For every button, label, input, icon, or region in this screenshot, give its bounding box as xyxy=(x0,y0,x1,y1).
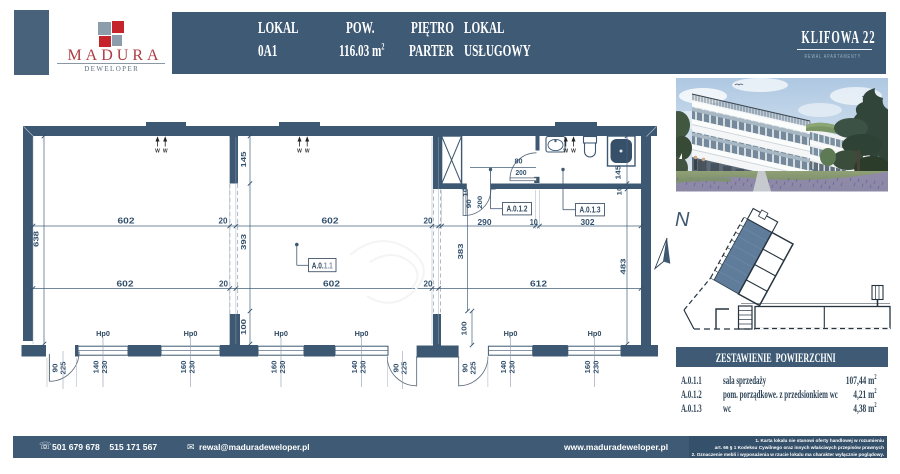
svg-text:W: W xyxy=(163,149,168,155)
svg-text:Hp0: Hp0 xyxy=(588,329,602,338)
svg-text:602: 602 xyxy=(117,279,134,289)
svg-text:90: 90 xyxy=(466,199,473,208)
svg-text:80: 80 xyxy=(515,159,523,166)
svg-text:100: 100 xyxy=(460,322,469,336)
svg-text:W: W xyxy=(571,149,576,155)
svg-text:160: 160 xyxy=(181,360,188,373)
svg-text:225: 225 xyxy=(471,361,478,374)
svg-text:140: 140 xyxy=(501,360,508,373)
svg-text:200: 200 xyxy=(516,170,527,177)
svg-text:230: 230 xyxy=(510,360,517,373)
svg-text:10: 10 xyxy=(463,187,470,196)
svg-text:90: 90 xyxy=(463,363,470,372)
svg-text:90: 90 xyxy=(394,363,401,372)
svg-text:10: 10 xyxy=(617,186,624,195)
svg-text:20: 20 xyxy=(219,216,228,226)
svg-text:302: 302 xyxy=(581,217,595,227)
svg-text:10: 10 xyxy=(530,217,538,227)
svg-text:160: 160 xyxy=(585,360,592,373)
svg-text:383: 383 xyxy=(456,244,465,260)
svg-text:A.0.1.3: A.0.1.3 xyxy=(580,204,601,214)
svg-text:602: 602 xyxy=(322,216,339,226)
svg-text:Hp0: Hp0 xyxy=(355,329,369,338)
svg-text:230: 230 xyxy=(280,360,287,373)
svg-text:602: 602 xyxy=(323,279,340,289)
svg-text:20: 20 xyxy=(424,279,433,289)
svg-text:W: W xyxy=(297,149,302,155)
svg-text:200: 200 xyxy=(477,195,484,208)
svg-text:290: 290 xyxy=(478,217,492,227)
svg-text:230: 230 xyxy=(361,360,368,373)
svg-text:W: W xyxy=(305,149,310,155)
svg-text:230: 230 xyxy=(594,360,601,373)
svg-text:483: 483 xyxy=(619,259,628,275)
svg-text:612: 612 xyxy=(530,279,547,289)
svg-text:230: 230 xyxy=(190,360,197,373)
svg-text:393: 393 xyxy=(239,234,248,250)
svg-text:90: 90 xyxy=(53,363,60,372)
svg-text:A.0.1.1: A.0.1.1 xyxy=(312,260,333,270)
svg-text:Hp0: Hp0 xyxy=(274,329,288,338)
svg-text:N: N xyxy=(675,209,690,231)
svg-text:145: 145 xyxy=(614,166,623,180)
svg-text:20: 20 xyxy=(424,216,433,226)
svg-text:638: 638 xyxy=(32,231,41,247)
svg-text:140: 140 xyxy=(94,360,101,373)
svg-text:100: 100 xyxy=(239,319,248,335)
svg-text:Hp0: Hp0 xyxy=(184,329,198,338)
svg-text:20: 20 xyxy=(219,279,228,289)
svg-text:230: 230 xyxy=(102,360,109,373)
svg-text:140: 140 xyxy=(352,360,359,373)
svg-text:160: 160 xyxy=(272,360,279,373)
svg-text:225: 225 xyxy=(61,361,68,374)
svg-text:W: W xyxy=(563,149,568,155)
svg-text:Hp0: Hp0 xyxy=(96,329,110,338)
svg-text:A.0.1.2: A.0.1.2 xyxy=(507,203,528,213)
svg-text:Hp0: Hp0 xyxy=(504,329,518,338)
svg-text:602: 602 xyxy=(118,216,135,226)
svg-text:145: 145 xyxy=(239,152,248,168)
svg-text:W: W xyxy=(155,149,160,155)
